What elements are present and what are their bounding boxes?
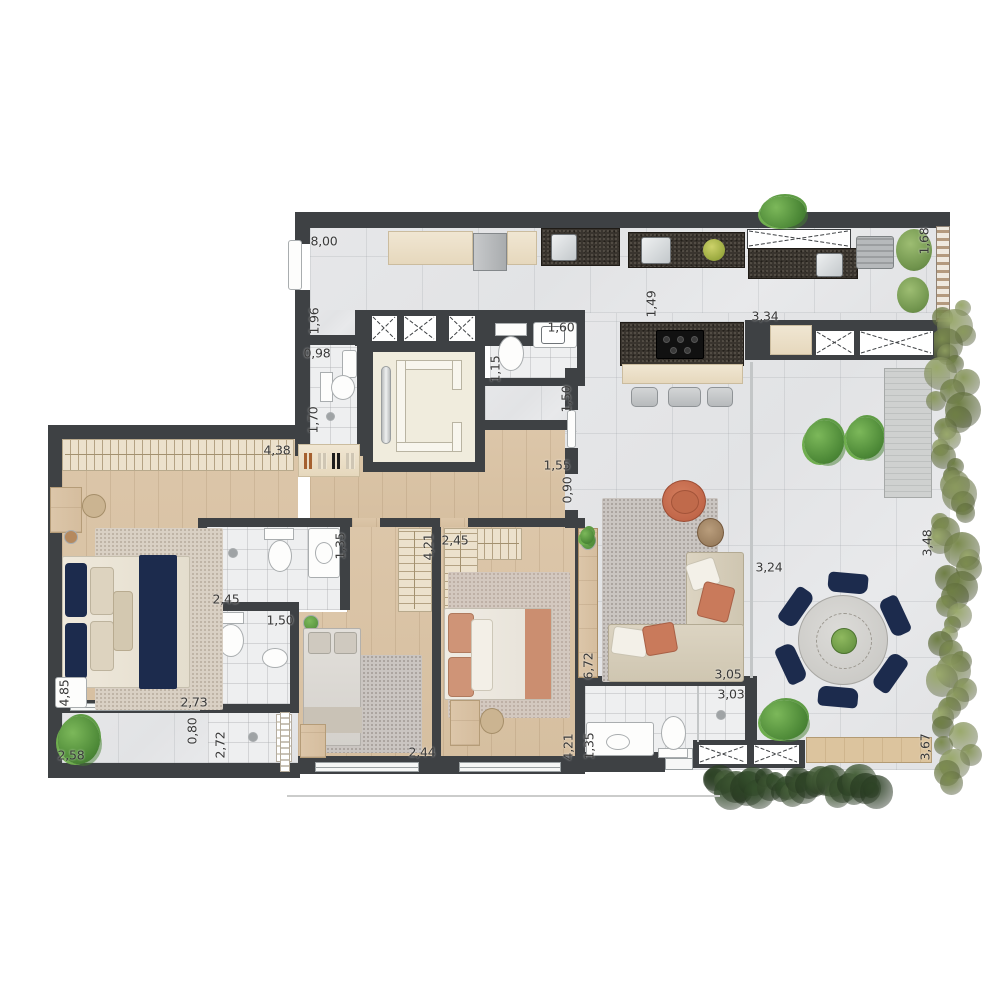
dining-chair [817,685,859,708]
svcbath-shower-head [326,412,335,421]
dimension-label: 1,15 [488,355,503,382]
bedroom3-bed [444,608,552,700]
bottom-cabinet-x1 [698,744,748,765]
svcbath-vanity [342,350,357,378]
fridge [473,233,507,271]
hedge-bottom [714,772,882,802]
shoes-beige [346,453,355,469]
burner [691,336,698,343]
pillow-white [471,619,493,691]
hedge-right [930,308,978,792]
dimension-label: 4,21 [421,533,436,560]
elevator-door [381,366,391,444]
dimension-label: 1,50 [266,613,293,628]
bed-runner-navy [139,555,177,689]
shoe-rack [298,444,360,477]
mbath-toilet [268,540,292,572]
shoes-brown [304,453,313,469]
terrace-cabinet-x1 [815,330,855,356]
dimension-label: 3,03 [717,687,744,702]
service-closet-x2 [403,315,437,342]
gourmet-plant-top [760,196,806,228]
wall-top [295,212,950,228]
kitchen-sink2 [641,237,671,264]
bedroom2-door-gap [352,518,380,527]
hedge-tuft [860,775,894,809]
hedge-tuft [956,503,976,523]
wall-bath3-right [745,676,757,746]
x-cross-icon [816,331,854,355]
bedroom3-door-gap [440,518,468,527]
dimension-label: 1,50 [559,385,574,412]
dimension-label: 3,48 [920,529,935,556]
dimension-label: 2,45 [212,592,239,607]
svcbath-toilet [331,375,355,400]
wall-powder-right [577,346,585,386]
x-cross-icon [754,745,799,764]
wall-bed2-bed3 [432,527,441,763]
dimension-label: 4,21 [561,733,576,760]
dimension-label: 1,60 [547,320,574,335]
dimension-label: 1,55 [543,458,570,473]
upper-cabinet-x [747,229,851,249]
entry-door-leaf [288,240,302,290]
cooktop [656,330,704,359]
dimension-label: 0,80 [185,717,200,744]
dimension-label: 4,38 [263,443,290,458]
x-cross-icon [372,316,397,341]
terrace-console [884,368,932,498]
hall-door-leaf [567,410,576,448]
dimension-label: 2,45 [441,533,468,548]
gourmet-bush2 [897,277,929,313]
balcony-drain-grate [280,712,290,772]
side-pouf [697,518,724,547]
bath3-toilet [661,716,686,750]
dining-table [798,595,888,685]
living-corner-plant [580,528,594,544]
slab-edge-line [287,795,720,797]
kitchen-counter-beige [388,231,473,265]
shoes-white [318,453,327,469]
wall-leftblock-bottom [48,763,300,778]
dimension-label: 0,90 [560,476,575,503]
hedge-tuft [940,771,964,795]
counter-plant [703,239,725,261]
bedroom2-desk [300,724,326,758]
dimension-label: 1,70 [306,406,321,433]
master-side-plant [64,530,78,544]
service-closet-x1 [371,315,398,342]
terrace-planter2 [846,417,884,459]
master-desk-chair [82,494,106,518]
living-terrace-glass [750,362,753,678]
island-base [622,364,743,384]
island-stool3 [707,387,733,407]
terrace-plant-low [760,700,808,740]
dimension-label: 3,34 [751,309,778,324]
terrace-cabinet [770,325,812,355]
dining-centerpiece-plant [831,628,857,654]
dimension-label: 4,85 [57,679,72,706]
balcony-shower-head [248,732,258,742]
elevator-wall-left [396,360,406,452]
bath3-shower-head [716,710,726,720]
mbath-toilet-tank [264,528,294,540]
burner [663,336,670,343]
elevator-wall-rbottom [452,422,462,452]
elevator-wall-rtop [452,360,462,390]
dimension-label: 6,72 [581,652,596,679]
mbath-shower-head [228,548,238,558]
master-desk [50,487,82,533]
master-closet [62,439,294,471]
pillow-beige [90,621,114,671]
wall-leftblock-left [48,425,62,778]
armchair-seat [671,490,699,514]
x-cross-icon [404,316,436,341]
wall-leftblock-top [48,425,310,439]
master-bed [62,556,190,688]
dimension-label: 3,05 [714,667,741,682]
pillow [334,632,357,654]
x-cross-icon [748,230,850,248]
bath2-sink [262,648,288,668]
dimension-label: 2,73 [180,695,207,710]
pillow-navy [65,563,87,617]
bedroom3-chair [480,708,504,734]
kitchen-sink1 [551,234,577,261]
bed-throw-salmon [525,609,551,699]
mbath-sink [315,542,333,564]
terrace-planter1 [804,420,844,464]
pillow [308,632,331,654]
x-cross-icon [699,745,747,764]
bottom-cabinet-x2 [753,744,800,765]
kitchen-counter-beige2 [507,231,537,265]
grill [856,236,894,269]
burner [684,347,691,354]
island-stool1 [631,387,658,407]
pillow-small [113,591,133,651]
dimension-label: 3,24 [755,560,782,575]
bath3-sink [606,734,630,750]
bedroom2-window [315,762,419,772]
dimension-label: 1,68 [917,227,932,254]
island-stool2 [668,387,701,407]
dimension-label: 1,96 [307,307,322,334]
dimension-label: 1,35 [333,532,348,559]
bedroom3-desk [450,700,480,746]
armchair-terracotta [662,480,706,522]
dimension-label: 2,58 [57,748,84,763]
powder-toilet-tank [495,323,527,336]
sofa-pillow-orange2 [642,621,679,656]
dimension-label: 3,67 [918,733,933,760]
x-cross-icon [449,316,475,341]
dimension-label: 0,98 [303,346,330,361]
x-cross-icon [860,331,933,355]
bath3-shower-glass [697,686,699,742]
bedroom3-window [459,762,561,772]
dimension-label: 2,72 [213,731,228,758]
dining-chair [827,571,869,594]
burner [670,347,677,354]
shoes-black [332,453,341,469]
terrace-cabinet-x2 [859,330,934,356]
dimension-label: 1,49 [644,290,659,317]
dimension-label: 1,35 [582,732,597,759]
wall-bath-service-top [303,335,365,345]
wall-mbath-top [198,518,350,527]
floor-plan: 8,001,491,960,981,701,601,151,501,550,90… [0,0,1000,1000]
dimension-label: 8,00 [310,234,337,249]
pillow-navy [65,623,87,679]
terrace-bench [806,737,932,763]
dimension-label: 2,44 [408,745,435,760]
burner [677,336,684,343]
service-closet-x3 [448,315,476,342]
pillow-beige [90,567,114,615]
wall-hall-top [485,420,567,430]
hedge-tuft [926,391,947,412]
gourmet-sink [816,253,843,277]
